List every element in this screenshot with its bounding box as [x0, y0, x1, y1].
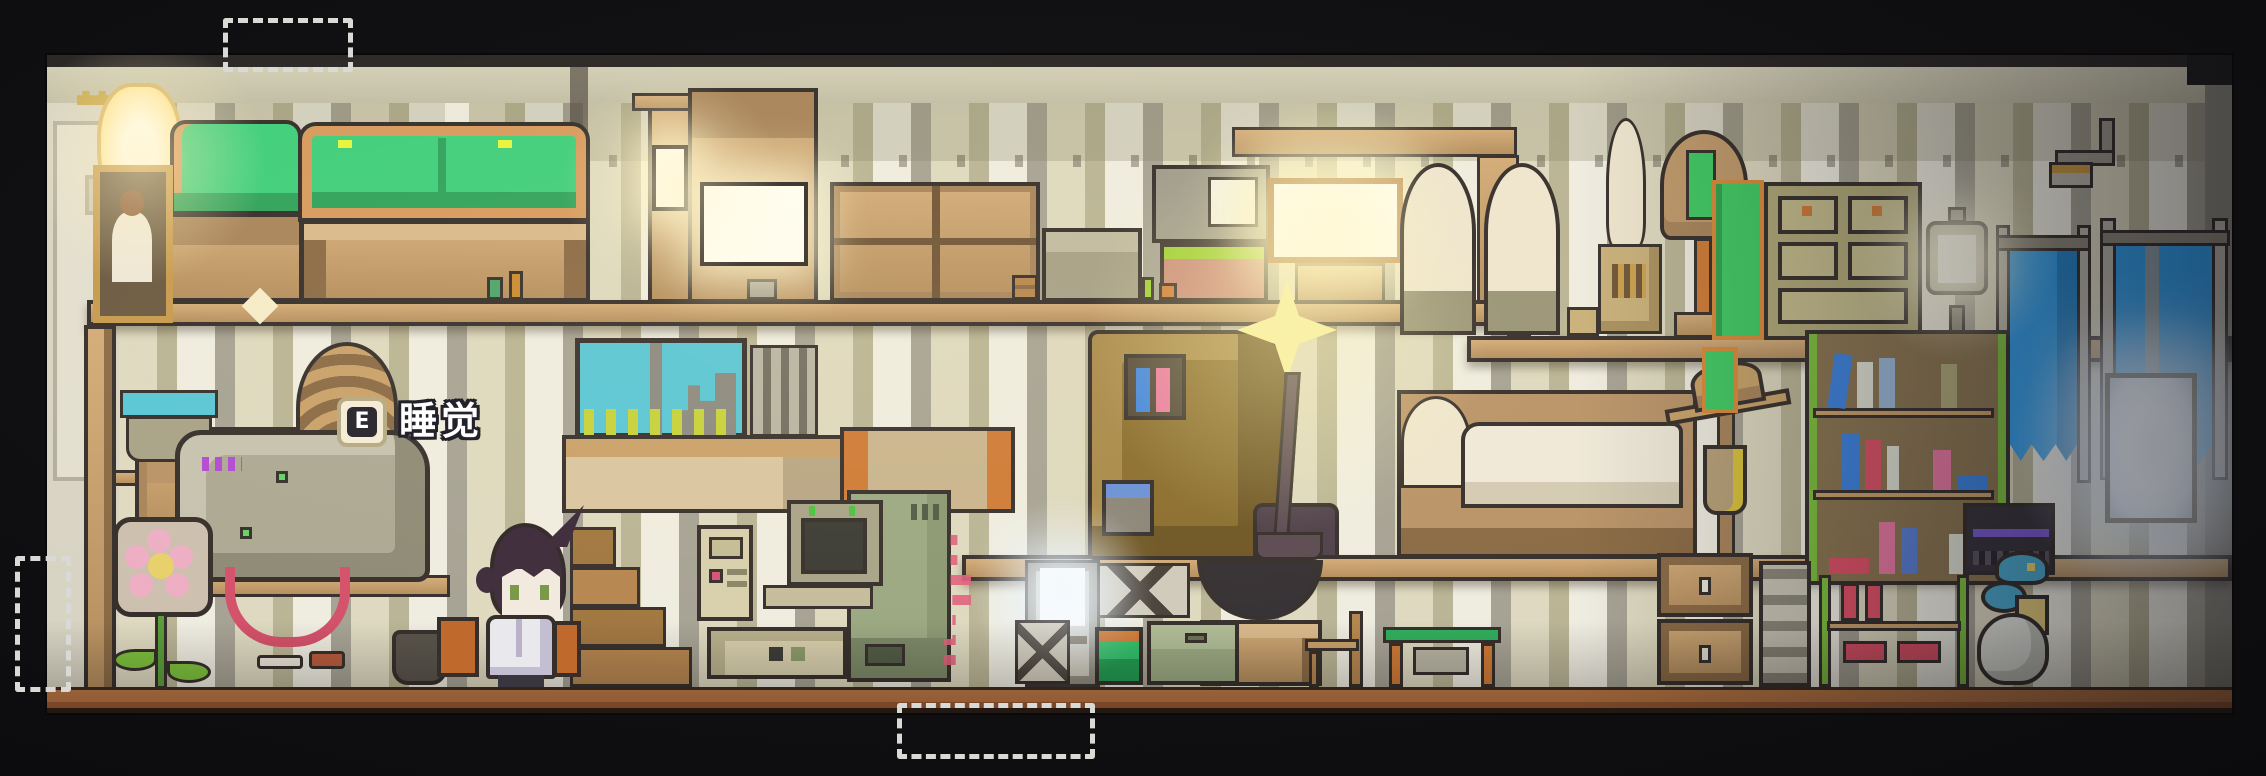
bell-stem — [1694, 238, 1712, 316]
character-collar — [516, 619, 522, 657]
petal-5 — [165, 573, 189, 597]
snowman[interactable] — [1967, 551, 2057, 689]
snowman-body — [1977, 613, 2049, 685]
trellis-small[interactable] — [1015, 620, 1070, 684]
cream-armchair-right — [1484, 163, 1560, 335]
cream-armchair-left — [1400, 163, 1476, 335]
floor-clutter-red — [309, 651, 345, 669]
bookshelf-board-1 — [1813, 408, 1994, 418]
clock-center — [148, 553, 174, 579]
hanging-green-towel[interactable] — [1702, 347, 1738, 413]
bed[interactable] — [1397, 390, 1697, 558]
tv-screen[interactable] — [700, 182, 808, 266]
armchair-cabinet[interactable] — [168, 213, 303, 302]
mattress-green-dot-2 — [240, 527, 252, 539]
crt-screen — [801, 518, 867, 574]
organ-pipes[interactable] — [750, 345, 818, 437]
olive-chest[interactable] — [1147, 621, 1239, 685]
portrait-frame[interactable] — [93, 165, 173, 323]
interaction-prompt: E 睡觉 — [337, 395, 537, 455]
pc-power-button[interactable] — [709, 569, 723, 583]
olive-knob-2 — [1872, 206, 1882, 216]
bookshelf-board-2 — [1813, 490, 1994, 500]
green-sofa[interactable] — [298, 122, 590, 222]
ceiling-band — [47, 67, 2232, 103]
banner-frame-right — [2077, 225, 2091, 483]
shelf-clutter-orange — [1159, 283, 1177, 300]
portrait-head — [120, 190, 144, 216]
nightstand[interactable] — [1042, 228, 1142, 302]
petal-2 — [125, 545, 149, 569]
chair[interactable] — [1305, 611, 1367, 687]
printer[interactable] — [707, 627, 847, 679]
shelf-clutter-bottle-amber — [509, 271, 523, 300]
ceiling-beam — [47, 55, 2232, 67]
glowing-monitor[interactable] — [1268, 178, 1403, 263]
street-lamp-light — [652, 145, 688, 211]
floor-clutter-plate — [257, 655, 303, 669]
shower-pipe[interactable] — [2055, 118, 2147, 196]
red-book-shelf[interactable] — [1819, 575, 1969, 687]
bookshelf-row-mid — [1821, 426, 1991, 490]
goose-neck — [1606, 118, 1646, 248]
drop-slot-left[interactable] — [15, 556, 71, 692]
sofa-highlight-2 — [498, 140, 512, 148]
stool-arm-left — [437, 617, 479, 677]
key-e-label: E — [347, 407, 377, 437]
banner2-frame-right — [2212, 218, 2228, 480]
flower-clock[interactable] — [95, 517, 240, 689]
hat-stand-scarf — [1703, 445, 1747, 515]
aquarium[interactable] — [575, 338, 747, 438]
trellis[interactable] — [1090, 563, 1190, 618]
green-chest[interactable] — [1095, 627, 1143, 685]
blue-banner-left[interactable] — [1996, 225, 2091, 483]
flower-leaf-right — [167, 661, 211, 683]
floor-lamp-light — [1040, 568, 1085, 626]
tub-rim — [120, 390, 218, 418]
drop-slot-bottom[interactable] — [897, 703, 1095, 759]
crt-led-1 — [809, 506, 815, 516]
lantern[interactable] — [1926, 207, 1988, 307]
window-light — [2105, 373, 2197, 523]
character-sidetail — [476, 567, 498, 593]
snowman-beak — [2027, 563, 2035, 571]
sofa-cushion-split — [438, 138, 446, 198]
petal-4 — [129, 573, 153, 597]
microwave-tv[interactable] — [1152, 165, 1270, 243]
wooden-dresser[interactable] — [830, 182, 1040, 302]
green-top-table[interactable] — [1383, 627, 1501, 687]
olive-drawer-4 — [1848, 242, 1908, 280]
loom-cubby — [1124, 354, 1186, 420]
prompt-action-label: 睡觉 — [399, 395, 535, 447]
character-eye-left — [510, 585, 519, 600]
key-e-badge[interactable]: E — [337, 397, 387, 447]
shower-head — [2049, 162, 2093, 188]
shelf-clutter-book-stack — [1012, 275, 1038, 300]
mattress-green-dot-1 — [276, 471, 288, 483]
crt-monitor[interactable] — [787, 500, 883, 586]
bed-duvet — [1461, 422, 1683, 508]
floor — [47, 687, 2232, 713]
drop-slot-top[interactable] — [223, 18, 353, 72]
aquarium-plants — [584, 409, 734, 435]
storage-crates[interactable] — [1657, 553, 1753, 687]
keyboard-tray[interactable] — [763, 585, 873, 609]
olive-knob-1 — [1802, 206, 1812, 216]
player-character[interactable] — [432, 505, 592, 687]
petal-1 — [147, 529, 171, 553]
shelf-clutter-tan-box — [1567, 307, 1599, 336]
olive-drawer-3 — [1778, 242, 1838, 280]
olive-dresser[interactable] — [1764, 182, 1922, 340]
green-wardrobe[interactable] — [1712, 180, 1764, 340]
screenshot-root: { "hud": { "interaction_prompt": { "key_… — [0, 0, 2266, 776]
banner-cloth — [2010, 251, 2077, 461]
shelf-clutter-lime — [1142, 277, 1154, 300]
shelf-clutter-box — [747, 279, 777, 300]
pc-tower[interactable] — [697, 525, 753, 621]
bookshelf-row-top — [1821, 348, 1991, 408]
microwave-screen — [1208, 177, 1258, 227]
snowman-bird-top — [1995, 551, 2049, 585]
star-lamp-stem — [1273, 372, 1301, 540]
stool-arm-right — [553, 621, 581, 677]
right-corner-dark — [2187, 55, 2232, 85]
loom-bucket — [1102, 480, 1154, 536]
character-eye-right — [540, 585, 549, 600]
room-scene: E 睡觉 — [47, 55, 2232, 713]
olive-drawer-wide — [1778, 288, 1908, 324]
character-legs — [498, 675, 544, 687]
sofa-table[interactable] — [300, 220, 590, 302]
character-ponytail — [542, 505, 584, 547]
mattress-squiggle — [202, 457, 242, 471]
shelf-clutter-bottle-green — [487, 277, 503, 300]
dresser-shelf-line — [834, 238, 1036, 245]
green-armchair[interactable] — [170, 120, 302, 215]
lantern-light — [1938, 235, 1976, 283]
portrait-figure — [112, 212, 152, 282]
crt-led-2 — [849, 506, 855, 516]
banner2-frame-top — [2100, 230, 2230, 246]
cream-armchairs[interactable] — [1400, 163, 1560, 335]
star-lamp-star — [1237, 280, 1337, 380]
star-lamp[interactable] — [1227, 280, 1347, 560]
goose-speaker-grid — [1612, 264, 1646, 298]
banner-frame-top — [1996, 235, 2091, 251]
ladder[interactable] — [1759, 561, 1811, 687]
flower-leaf-left — [113, 649, 157, 671]
star-lamp-pot — [1255, 532, 1323, 560]
sofa-highlight — [338, 140, 352, 148]
monitor-shelf-board — [1232, 127, 1517, 157]
